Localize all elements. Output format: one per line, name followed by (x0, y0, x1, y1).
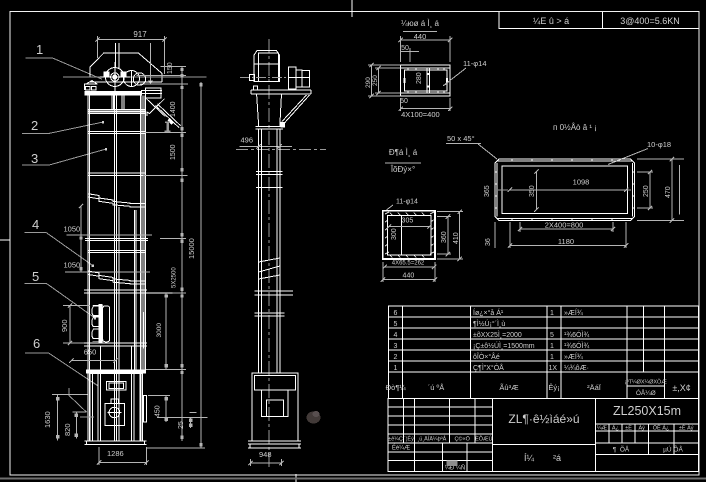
svg-text:±È: ±È (625, 424, 632, 431)
svg-text:±,X¢: ±,X¢ (672, 383, 690, 393)
svg-text:ZL250X15m: ZL250X15m (613, 404, 681, 418)
svg-text:²ÄáÏ: ²ÄáÏ (587, 383, 602, 392)
svg-text:±õXX25Ì¸=2000: ±õXX25Ì¸=2000 (473, 330, 522, 339)
svg-text:¼юø á Ì¸ á: ¼юø á Ì¸ á (401, 19, 440, 28)
svg-text:1: 1 (36, 42, 43, 57)
svg-text:2: 2 (394, 354, 398, 361)
svg-text:10-φ18: 10-φ18 (647, 140, 671, 149)
svg-text:1X: 1X (549, 365, 558, 372)
svg-text:150: 150 (167, 62, 174, 74)
svg-text:5X2500: 5X2500 (172, 267, 178, 288)
svg-text:1: 1 (550, 354, 554, 361)
svg-text:¹¾6ÓÌ¾: ¹¾6ÓÌ¾ (564, 330, 589, 339)
svg-text:3: 3 (394, 343, 398, 350)
svg-text:5: 5 (550, 332, 554, 339)
svg-text:»ÆÍ¾: »ÆÍ¾ (564, 308, 583, 317)
svg-text:410: 410 (453, 232, 460, 244)
svg-text:Ãû³Æ: Ãû³Æ (499, 383, 519, 392)
svg-text:11-φ14: 11-φ14 (463, 59, 487, 68)
svg-text:Àý: Àý (638, 424, 645, 431)
svg-text:1500: 1500 (170, 144, 177, 160)
svg-text:1286: 1286 (107, 449, 124, 458)
svg-text:496: 496 (241, 136, 254, 145)
svg-text:п 0½Åò â ¹ ¡: п 0½Åò â ¹ ¡ (553, 123, 597, 132)
svg-text:¶ ÕÅ: ¶ ÕÅ (613, 445, 630, 454)
svg-text:Éè¼Æ: Éè¼Æ (392, 445, 410, 452)
svg-text:ZL¶·ê½ìáé»ú: ZL¶·ê½ìáé»ú (508, 412, 579, 426)
svg-text:¼E û > á: ¼E û > á (533, 16, 569, 26)
svg-text:50 x 45°: 50 x 45° (447, 134, 475, 143)
svg-text:ÎõÐý×°: ÎõÐý×° (390, 165, 415, 174)
svg-text:25: 25 (178, 421, 185, 429)
svg-text:250: 250 (643, 185, 650, 197)
svg-text:Íø¿×°å Á¹: Íø¿×°å Á¹ (473, 308, 504, 317)
svg-text:820: 820 (63, 423, 72, 436)
svg-text:1: 1 (550, 343, 554, 350)
svg-text:4X65.5=262: 4X65.5=262 (392, 260, 425, 266)
svg-text:5: 5 (32, 269, 39, 284)
svg-text:650: 650 (84, 348, 97, 357)
svg-text:¼¾ôÆ·: ¼¾ôÆ· (564, 365, 589, 372)
svg-text:2X400=800: 2X400=800 (545, 221, 584, 230)
svg-text:250: 250 (372, 75, 379, 86)
svg-text:948: 948 (259, 450, 272, 459)
svg-text:1630: 1630 (43, 411, 52, 428)
svg-text:¹¾6ÓÌ¾: ¹¾6ÓÌ¾ (564, 341, 589, 350)
svg-text:»ÆÍ¾: »ÆÍ¾ (564, 352, 583, 361)
svg-text:±È Àý: ±È Àý (679, 424, 694, 431)
svg-text:917: 917 (133, 30, 147, 39)
svg-text:Êý¡: Êý¡ (548, 383, 559, 392)
svg-text:6: 6 (33, 336, 40, 351)
svg-text:1050: 1050 (64, 261, 81, 270)
svg-text:4: 4 (394, 332, 398, 339)
svg-text:¸ü¸ÄÎÄ¼þºÅ: ¸ü¸ÄÎÄ¼þºÅ (417, 435, 446, 442)
svg-text:470: 470 (665, 186, 672, 198)
svg-text:365: 365 (484, 185, 491, 197)
svg-text:305: 305 (402, 218, 414, 225)
svg-text:50: 50 (401, 45, 409, 52)
svg-text:¡ªT¼ØX¼ØXÒÆ: ¡ªT¼ØX¼ØXÒÆ (625, 379, 668, 386)
svg-text:15000: 15000 (187, 238, 196, 259)
svg-text:3000: 3000 (156, 323, 163, 338)
svg-text:290: 290 (365, 77, 372, 88)
svg-text:ÖÊ Á¿: ÖÊ Á¿ (653, 423, 670, 431)
svg-text:±ê¼Ç: ±ê¼Ç (388, 436, 403, 442)
svg-text:1180: 1180 (558, 237, 574, 246)
svg-text:Í¼: Í¼ (524, 453, 535, 463)
svg-text:ÈÕÆÚ: ÈÕÆÚ (475, 435, 492, 442)
svg-text:µÚ ÕÅ: µÚ ÕÅ (663, 445, 683, 454)
svg-text:Ð¶á Ì¸ á: Ð¶á Ì¸ á (389, 148, 418, 157)
svg-text:11-φ14: 11-φ14 (396, 199, 418, 206)
svg-text:2: 2 (31, 118, 38, 133)
svg-text:900: 900 (60, 319, 69, 332)
svg-text:5: 5 (394, 321, 398, 328)
svg-text:3: 3 (31, 151, 38, 166)
svg-text:´¦Êý: ´¦Êý (404, 434, 414, 442)
svg-text:360: 360 (441, 231, 448, 243)
svg-text:4X100=400: 4X100=400 (401, 110, 440, 119)
svg-text:ÓÅ¼Ø: ÓÅ¼Ø (636, 388, 656, 397)
svg-text:¼Æ: ¼Æ (597, 425, 608, 431)
svg-text:ôÎÒ×°Âé: ôÎÒ×°Âé (473, 352, 500, 361)
svg-text:450: 450 (155, 405, 162, 417)
svg-text:Ðò¶¼: Ðò¶¼ (386, 383, 407, 392)
svg-text:¡Ç±ô½ÚÌ¸=1500mm: ¡Ç±ô½ÚÌ¸=1500mm (473, 341, 535, 350)
svg-text:36: 36 (485, 238, 492, 246)
svg-text:1400: 1400 (170, 101, 177, 117)
svg-text:1098: 1098 (573, 178, 590, 187)
svg-text:4: 4 (32, 217, 39, 232)
svg-text:3@400=5.6KN: 3@400=5.6KN (620, 16, 679, 26)
svg-text:280: 280 (416, 72, 423, 84)
svg-text:²á: ²á (553, 453, 561, 463)
svg-text:Ç©×Ö: Ç©×Ö (454, 435, 470, 442)
svg-text:350: 350 (529, 185, 536, 197)
svg-text:6: 6 (394, 310, 398, 317)
svg-text:¶Ì½Ú¡°´Ì¸ù: ¶Ì½Ú¡°´Ì¸ù (473, 319, 505, 328)
svg-text:50: 50 (400, 98, 408, 105)
svg-text:Á¿: Á¿ (612, 424, 619, 431)
svg-text:Ç¶Ì"X°ÓÅ: Ç¶Ì"X°ÓÅ (473, 363, 504, 372)
svg-text:300: 300 (391, 228, 398, 240)
svg-text:440: 440 (403, 273, 415, 280)
svg-text:´ú ºÅ: ´ú ºÅ (428, 383, 445, 392)
svg-text:1: 1 (550, 310, 554, 317)
svg-text:1050: 1050 (64, 225, 81, 234)
svg-text:1: 1 (394, 365, 398, 372)
